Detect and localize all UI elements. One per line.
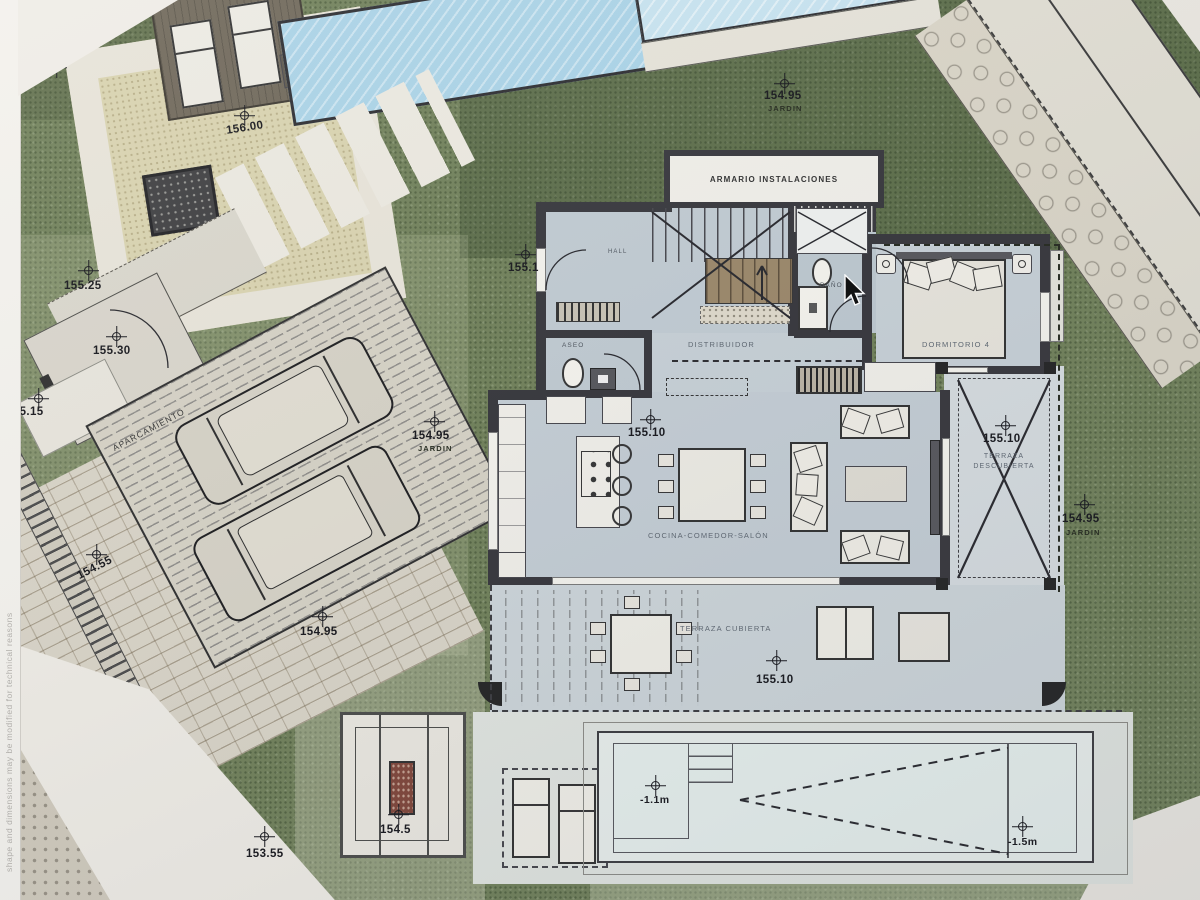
cushion xyxy=(795,473,818,496)
stair-flight xyxy=(705,258,793,304)
outdoor-chair xyxy=(590,622,606,635)
kitchen-appliance xyxy=(546,396,586,424)
bed-headboard xyxy=(896,252,1012,259)
kitchen-counter xyxy=(498,404,526,554)
side-terrace-strip xyxy=(1050,250,1064,342)
dining-chair xyxy=(750,506,766,519)
room-label-cocina: COCINA-COMEDOR-SALÓN xyxy=(648,531,769,540)
cushion xyxy=(841,534,870,561)
radiator xyxy=(556,302,620,322)
elevation-marker xyxy=(260,832,269,841)
cushion xyxy=(841,407,870,434)
elevation-marker xyxy=(646,415,655,424)
garden-label: JARDIN xyxy=(418,444,453,453)
elevation-label: 154.95 xyxy=(300,626,338,638)
garden-label: JARDIN xyxy=(768,104,803,113)
dining-chair xyxy=(658,454,674,467)
toilet xyxy=(562,358,584,388)
sun-lounger xyxy=(512,778,550,858)
aseo-sink xyxy=(590,368,616,390)
cushion xyxy=(876,535,904,560)
garden-label: JARDIN xyxy=(1066,528,1101,537)
cooktop xyxy=(581,451,611,497)
room-label-distribuidor: DISTRIBUIDOR xyxy=(688,340,755,349)
wall xyxy=(794,330,872,338)
elevation-label: 154.95 xyxy=(412,430,450,442)
wall xyxy=(536,202,546,398)
elevation-marker xyxy=(772,656,781,665)
dining-chair xyxy=(658,480,674,493)
elevation-marker xyxy=(521,250,530,259)
dining-chair xyxy=(750,454,766,467)
dining-chair xyxy=(658,506,674,519)
sink-basin xyxy=(598,375,608,383)
stair-treads xyxy=(652,208,792,262)
elevation-marker xyxy=(240,111,249,120)
cushion xyxy=(793,445,823,473)
console-sideboard xyxy=(796,366,862,394)
sliding-glass-door xyxy=(552,577,840,585)
pool-depth-label: -1.5m xyxy=(1008,836,1037,848)
elevation-label: 155.10 xyxy=(983,433,1021,445)
elevation-marker xyxy=(780,79,789,88)
plot-boundary-dashed xyxy=(884,244,1060,246)
room-label-aseo: ASEO xyxy=(562,342,584,349)
room-label-bano: BAÑO xyxy=(820,282,843,289)
pool-steps xyxy=(689,743,733,783)
sofa xyxy=(790,442,828,532)
plot-boundary-dashed xyxy=(1058,244,1060,592)
tv-unit xyxy=(930,440,940,535)
outdoor-fireplace xyxy=(389,761,415,815)
room-label-armario: ARMARIO INSTALACIONES xyxy=(710,175,838,184)
window xyxy=(942,438,950,536)
sun-lounger xyxy=(169,19,224,109)
outdoor-chair xyxy=(624,678,640,691)
pergola-shade-hatch xyxy=(505,590,705,706)
elevation-marker xyxy=(394,810,403,819)
room-label-dormitorio4: DORMITORIO 4 xyxy=(922,340,990,349)
elevation-marker xyxy=(34,394,43,403)
nightstand xyxy=(876,254,896,274)
bar-stool xyxy=(612,476,632,496)
pillow xyxy=(972,265,1002,291)
elevation-marker xyxy=(1080,500,1089,509)
elevation-marker xyxy=(430,417,439,426)
room-label-hall: HALL xyxy=(608,249,627,255)
ceiling-recess-dashed xyxy=(666,378,748,396)
column xyxy=(936,578,948,590)
outdoor-dining-table xyxy=(610,614,672,674)
bar-stool xyxy=(612,506,632,526)
elevation-marker xyxy=(651,781,660,790)
column xyxy=(1044,362,1056,374)
wall xyxy=(868,234,1048,244)
pool-shelf xyxy=(613,743,689,839)
sofa xyxy=(840,405,910,439)
lamp xyxy=(882,260,890,268)
disclaimer-text: shape and dimensions may be modified for… xyxy=(4,612,14,872)
elevation-label: 154.95 xyxy=(764,90,802,102)
column xyxy=(1044,578,1056,590)
sink-basin xyxy=(809,303,817,313)
outdoor-chair xyxy=(624,596,640,609)
car-roof xyxy=(215,363,351,478)
elevation-marker xyxy=(1001,421,1010,430)
slab-edge-dashed xyxy=(490,585,492,710)
outdoor-chair xyxy=(590,650,606,663)
bar-stool xyxy=(612,444,632,464)
window xyxy=(1040,292,1050,342)
bath-sink xyxy=(798,286,828,330)
armario-instalaciones: ARMARIO INSTALACIONES xyxy=(664,150,884,208)
wall xyxy=(536,330,652,338)
elevation-label: 155.10 xyxy=(756,674,794,686)
coffee-table xyxy=(845,466,907,502)
cushion xyxy=(793,496,824,526)
pool-depth-label: -1.1m xyxy=(640,794,669,806)
car-roof xyxy=(236,473,375,591)
elevation-label: 155.25 xyxy=(64,280,102,292)
outdoor-chair xyxy=(676,650,692,663)
dining-chair xyxy=(750,480,766,493)
shower xyxy=(796,208,868,254)
site-plan: APARCAMIENTO ARMARIO INSTALACIONES xyxy=(0,0,1200,900)
bench xyxy=(864,362,936,392)
elevation-marker xyxy=(318,612,327,621)
slab-edge-dashed xyxy=(492,710,1122,712)
elevation-label: 155.10 xyxy=(628,427,666,439)
lamp xyxy=(1018,260,1026,268)
sun-lounger xyxy=(227,0,282,89)
elevation-label: 155.1 xyxy=(508,262,539,274)
elevation-marker xyxy=(84,266,93,275)
outdoor-sofa xyxy=(898,612,950,662)
elevation-label: 154.5 xyxy=(380,824,411,836)
room-label-aparcamiento: APARCAMIENTO xyxy=(111,406,187,453)
dining-table xyxy=(678,448,746,522)
terraza-descubierta-dashed xyxy=(958,378,1050,578)
pergola xyxy=(340,712,466,858)
column xyxy=(936,362,948,374)
elevation-label: 155.30 xyxy=(93,345,131,357)
elevation-label: 153.55 xyxy=(246,848,284,860)
outdoor-sofa xyxy=(816,606,874,660)
pergola-beam xyxy=(427,715,429,855)
kitchen-appliance xyxy=(602,396,632,424)
sofa xyxy=(840,530,910,564)
cushion xyxy=(876,408,905,434)
elevation-marker xyxy=(112,332,121,341)
room-label-terraza-cubierta: TERRAZA CUBIERTA xyxy=(680,624,772,633)
nightstand xyxy=(1012,254,1032,274)
opening-dashed xyxy=(672,360,862,362)
wall xyxy=(644,330,652,398)
elevation-label: 154.95 xyxy=(1062,513,1100,525)
room-label-terraza-descubierta: TERRAZA DESCUBIERTA xyxy=(972,452,1036,472)
mouse-cursor xyxy=(843,274,867,310)
elevation-marker xyxy=(1018,822,1027,831)
window xyxy=(488,432,498,550)
doormat xyxy=(700,306,790,324)
kitchen-cabinet xyxy=(498,552,526,578)
